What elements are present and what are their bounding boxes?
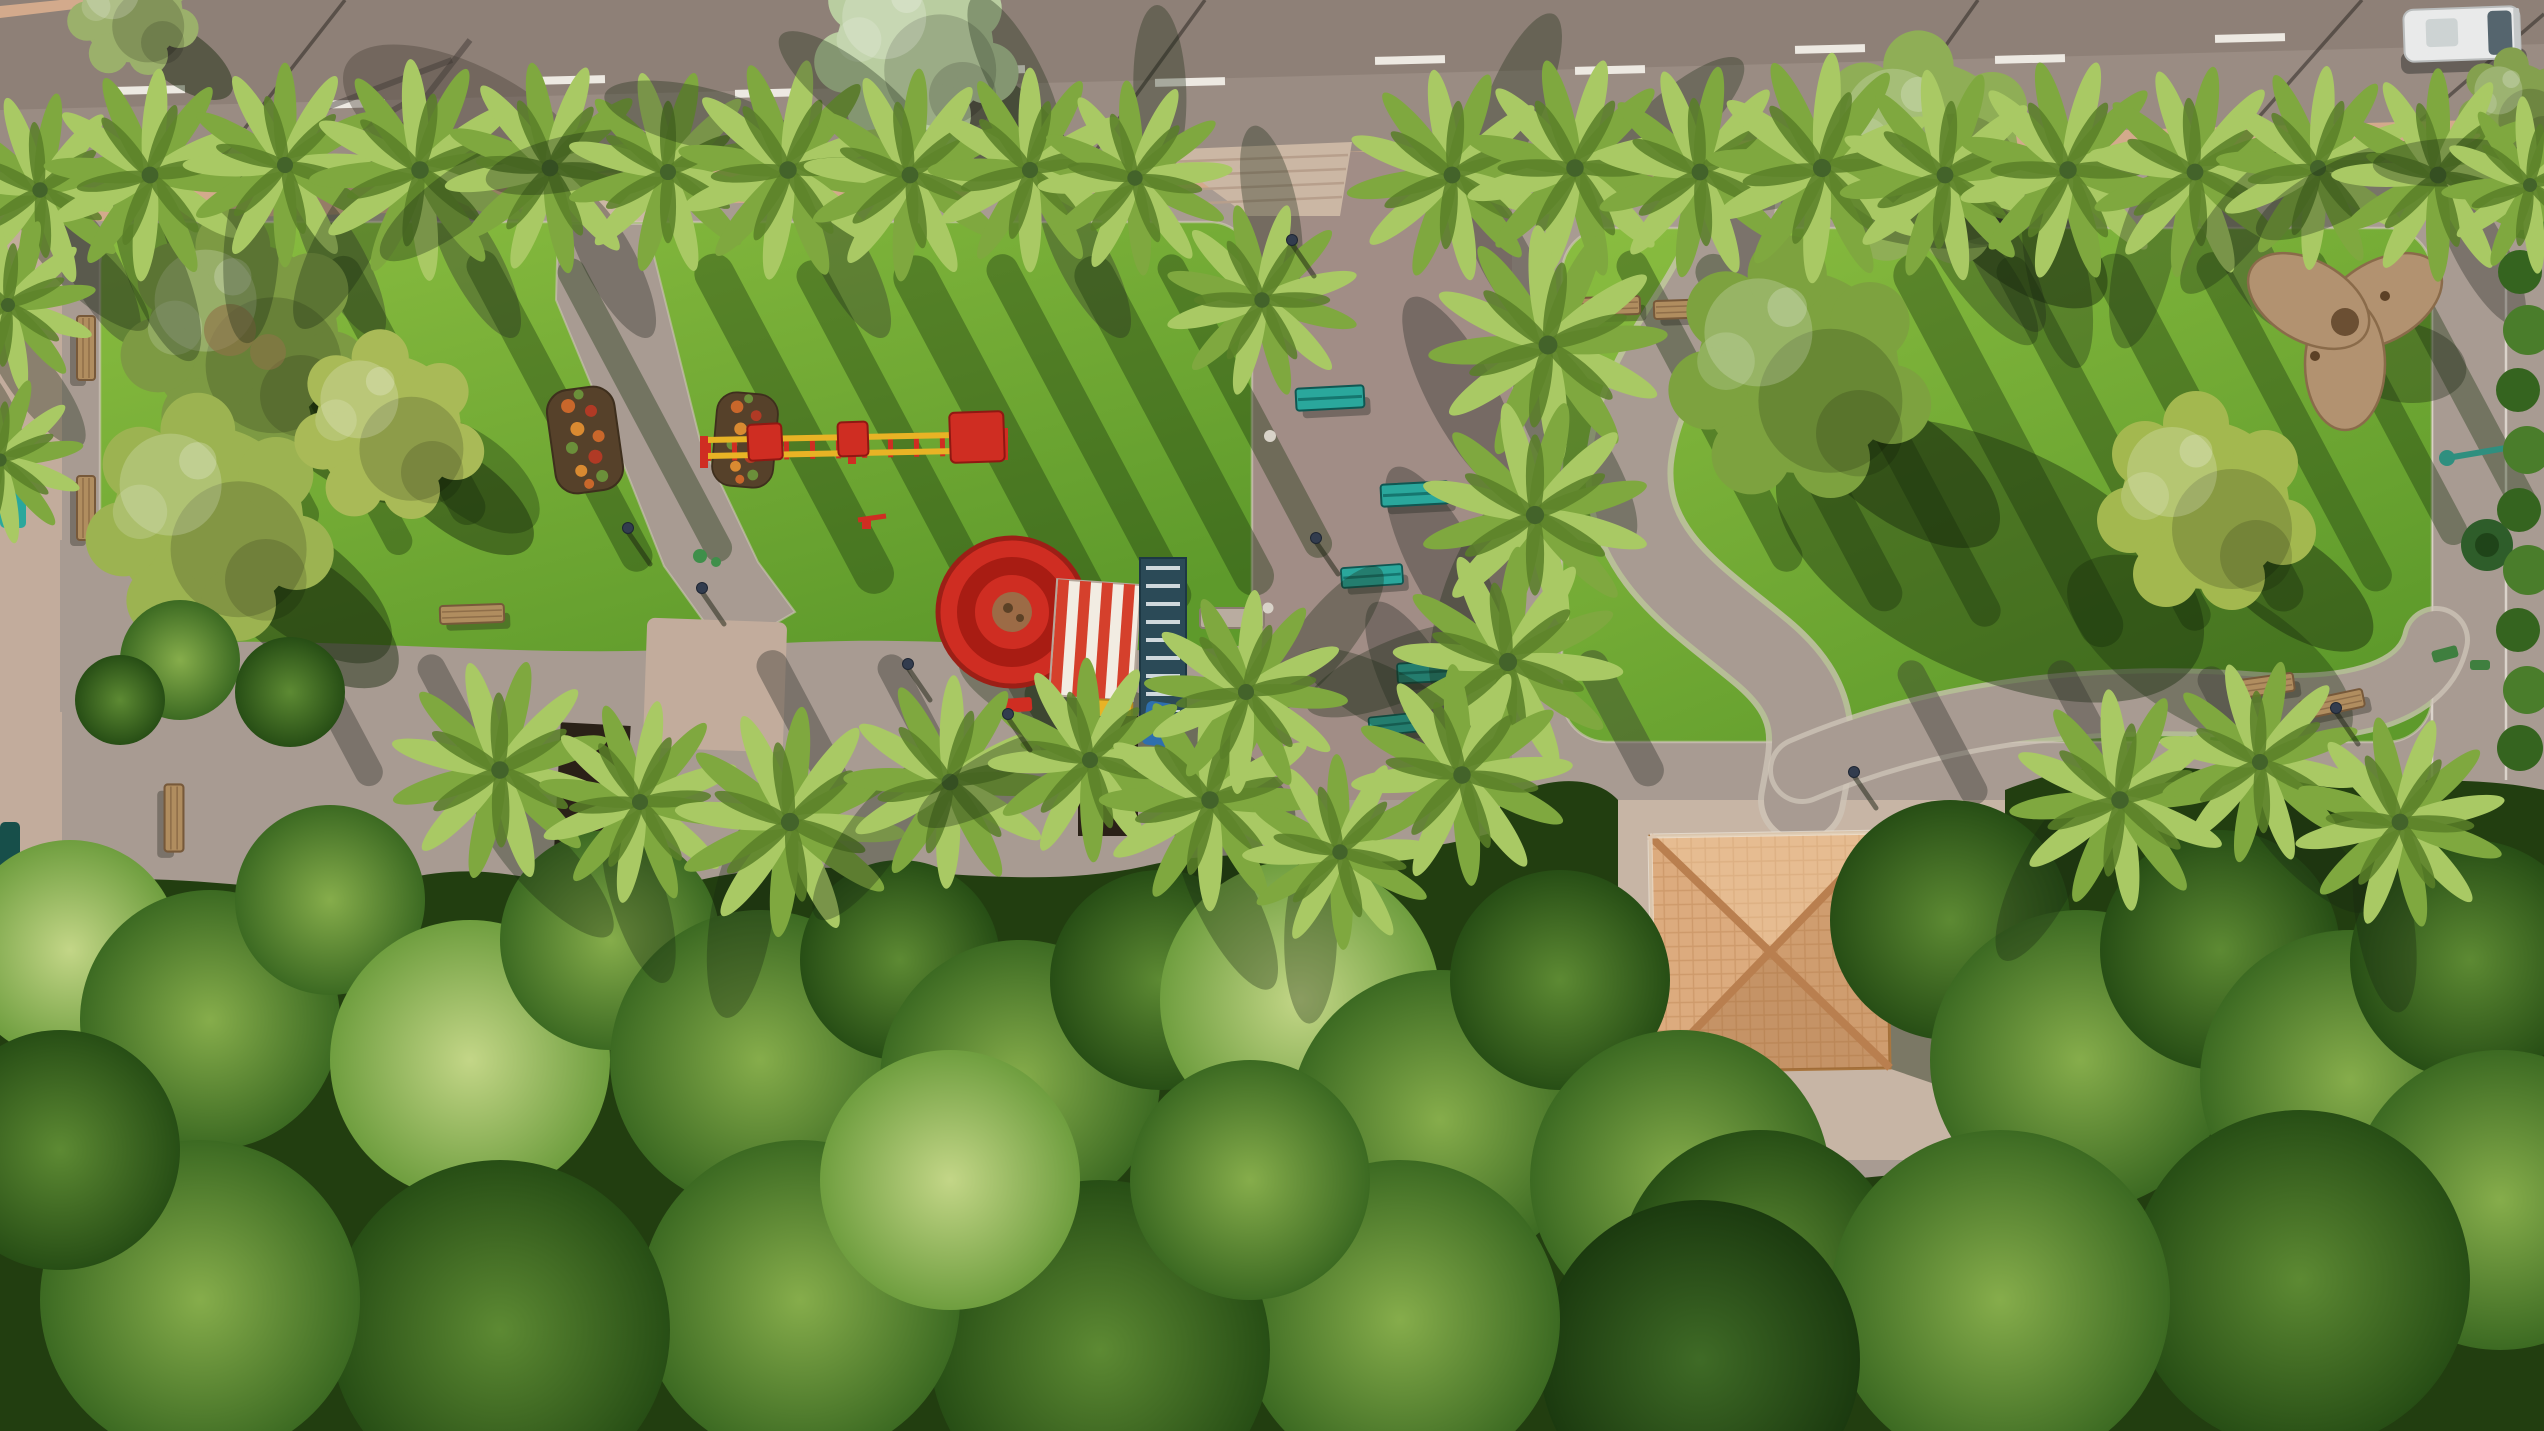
park-scene-canvas: Aerial top-down 3D architectural renderi… — [0, 0, 2544, 1431]
aerial-park-render: Aerial top-down 3D architectural renderi… — [0, 0, 2544, 1431]
wooden-bench[interactable] — [440, 604, 511, 631]
teal-bench[interactable] — [1295, 385, 1370, 419]
litter-bin[interactable] — [1263, 603, 1274, 614]
play-cube[interactable] — [747, 423, 783, 461]
wooden-bench[interactable] — [157, 784, 183, 858]
tree-branch-patch — [250, 334, 286, 370]
flower-bed — [544, 384, 626, 496]
play-cube[interactable] — [837, 421, 868, 456]
litter-bin[interactable] — [1264, 430, 1276, 442]
play-tower[interactable] — [949, 411, 1005, 463]
